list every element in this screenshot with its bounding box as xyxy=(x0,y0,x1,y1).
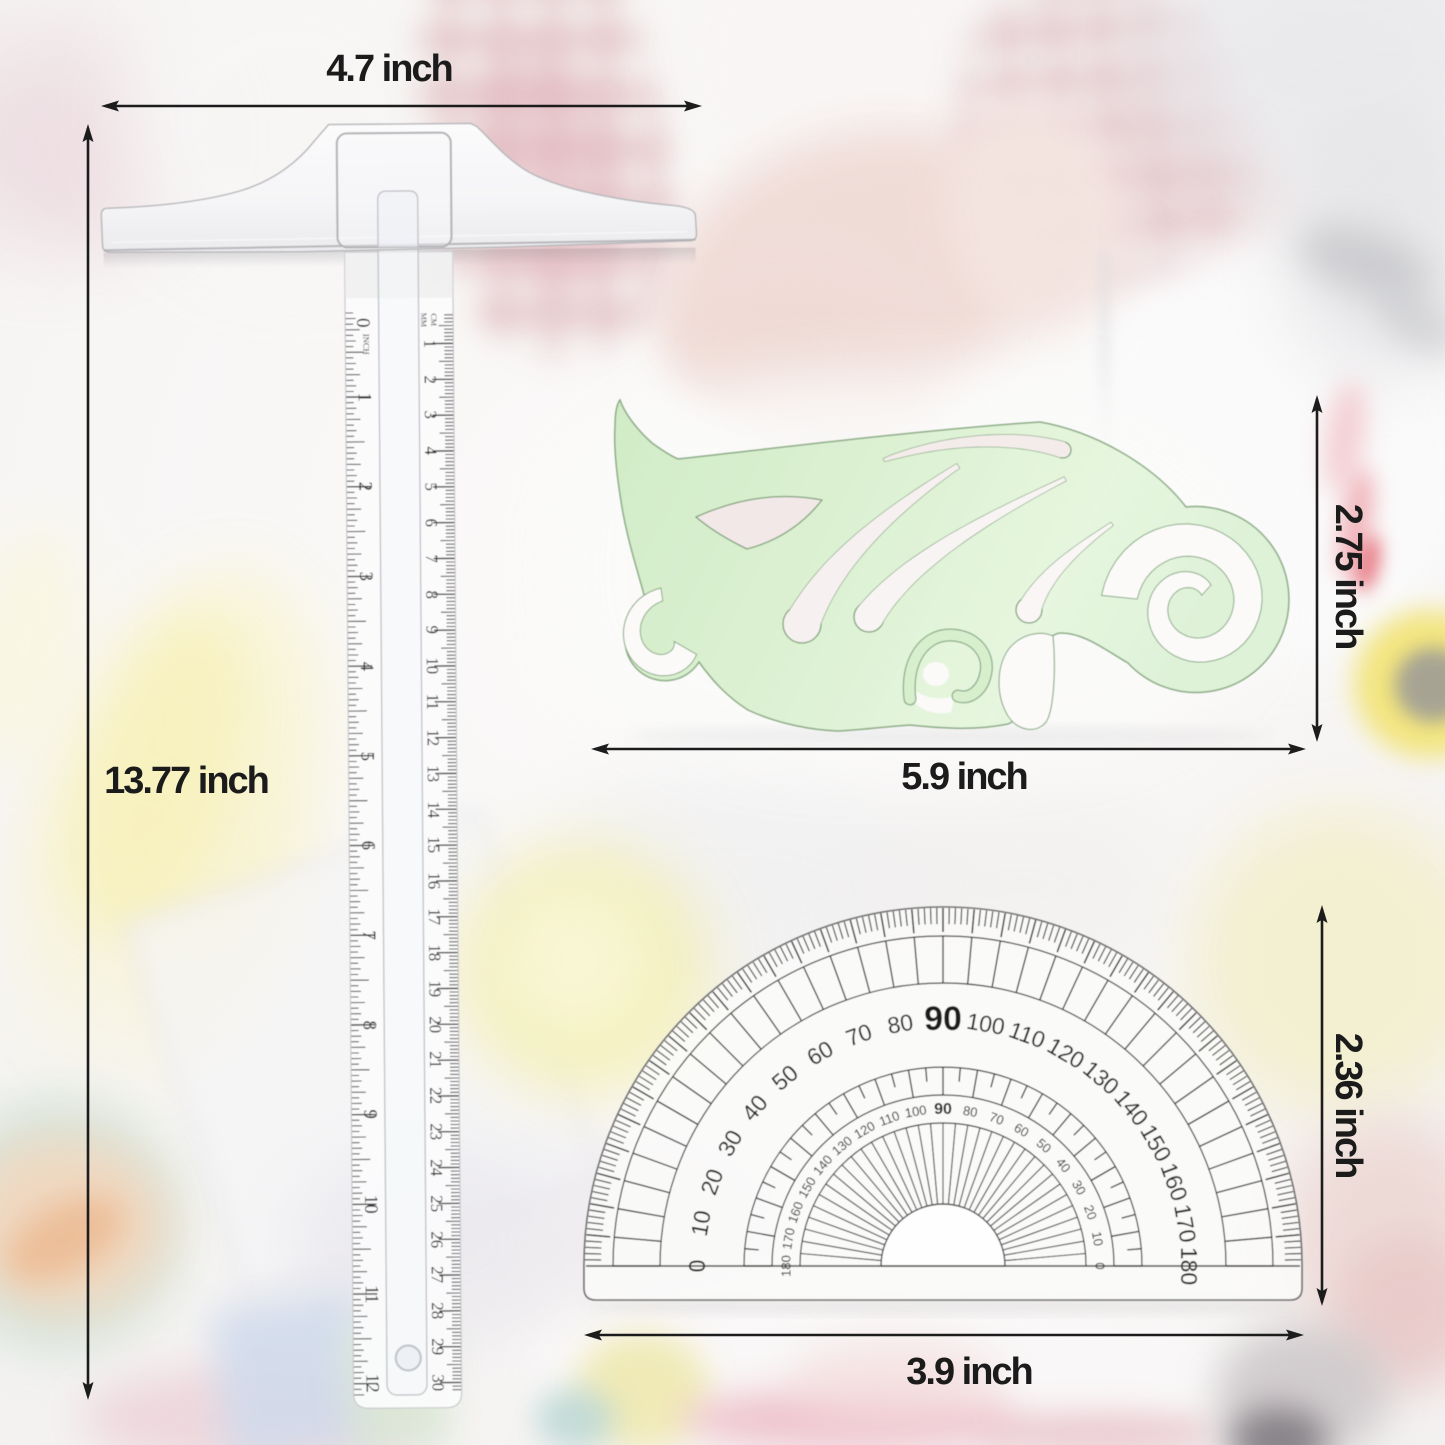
svg-text:3: 3 xyxy=(355,571,376,581)
svg-text:5: 5 xyxy=(357,751,378,761)
svg-text:90: 90 xyxy=(924,1000,962,1038)
svg-text:5.9 inch: 5.9 inch xyxy=(901,756,1027,798)
svg-text:MM: MM xyxy=(419,313,428,327)
svg-text:10: 10 xyxy=(686,1208,716,1238)
svg-text:1: 1 xyxy=(354,392,375,402)
svg-text:13: 13 xyxy=(424,765,443,782)
svg-text:27: 27 xyxy=(428,1266,447,1284)
svg-text:7: 7 xyxy=(422,554,441,563)
svg-text:10: 10 xyxy=(1089,1230,1106,1247)
svg-text:29: 29 xyxy=(428,1338,447,1355)
svg-text:5: 5 xyxy=(421,482,440,491)
svg-text:26: 26 xyxy=(427,1231,446,1248)
svg-text:20: 20 xyxy=(426,1016,445,1033)
svg-text:12: 12 xyxy=(361,1374,382,1393)
svg-text:17: 17 xyxy=(425,908,444,926)
svg-text:CM: CM xyxy=(429,313,438,326)
svg-text:90: 90 xyxy=(934,1101,952,1118)
svg-text:23: 23 xyxy=(426,1123,445,1140)
svg-text:2: 2 xyxy=(354,481,375,491)
svg-text:3: 3 xyxy=(421,410,440,419)
svg-text:7: 7 xyxy=(358,930,379,940)
svg-text:INCH: INCH xyxy=(361,334,371,355)
svg-text:2.75 inch: 2.75 inch xyxy=(1327,504,1369,649)
svg-text:10: 10 xyxy=(360,1195,381,1214)
svg-text:4: 4 xyxy=(356,661,377,671)
svg-text:8: 8 xyxy=(359,1020,380,1030)
svg-text:13.77 inch: 13.77 inch xyxy=(104,760,268,802)
svg-text:1: 1 xyxy=(420,339,439,348)
svg-text:22: 22 xyxy=(426,1087,445,1104)
svg-text:10: 10 xyxy=(423,657,442,674)
svg-text:14: 14 xyxy=(424,801,443,819)
svg-text:80: 80 xyxy=(962,1103,979,1120)
svg-text:0: 0 xyxy=(684,1260,710,1273)
svg-text:11: 11 xyxy=(361,1285,382,1303)
svg-text:4: 4 xyxy=(421,446,440,455)
svg-text:8: 8 xyxy=(422,590,441,599)
svg-text:16: 16 xyxy=(424,872,443,889)
svg-text:6: 6 xyxy=(422,518,441,527)
svg-text:19: 19 xyxy=(425,980,444,997)
svg-text:9: 9 xyxy=(359,1109,380,1119)
svg-text:24: 24 xyxy=(427,1159,446,1177)
svg-text:11: 11 xyxy=(423,693,442,710)
svg-text:28: 28 xyxy=(428,1302,447,1319)
svg-text:2.36 inch: 2.36 inch xyxy=(1327,1033,1369,1178)
svg-text:3.9 inch: 3.9 inch xyxy=(906,1351,1032,1393)
svg-text:21: 21 xyxy=(426,1051,445,1068)
svg-text:180: 180 xyxy=(1176,1247,1202,1285)
svg-text:80: 80 xyxy=(885,1009,915,1039)
svg-text:9: 9 xyxy=(423,625,442,634)
svg-text:25: 25 xyxy=(427,1195,446,1212)
svg-text:12: 12 xyxy=(423,729,442,746)
svg-text:18: 18 xyxy=(425,944,444,961)
svg-text:15: 15 xyxy=(424,836,443,853)
svg-text:180: 180 xyxy=(779,1255,794,1277)
svg-text:0: 0 xyxy=(1093,1262,1108,1269)
svg-text:2: 2 xyxy=(421,375,440,384)
svg-text:6: 6 xyxy=(357,840,378,850)
svg-text:0: 0 xyxy=(352,318,373,328)
svg-text:4.7 inch: 4.7 inch xyxy=(326,48,452,90)
svg-text:30: 30 xyxy=(428,1374,447,1391)
